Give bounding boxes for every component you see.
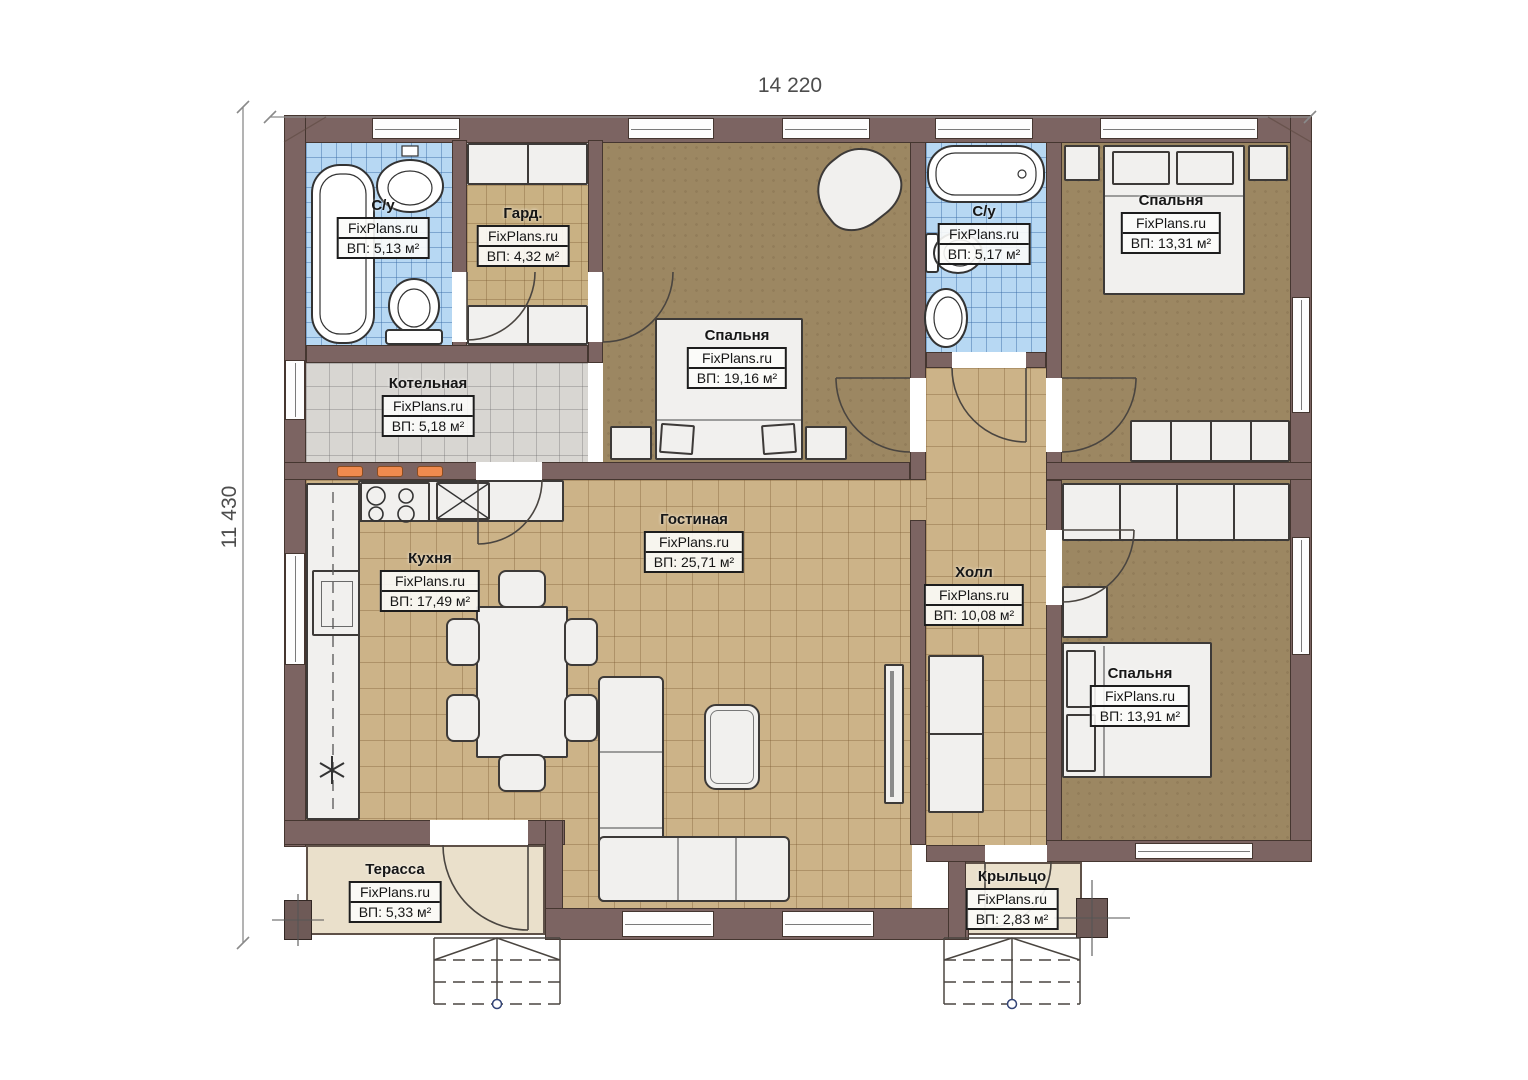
window-bottom-living-left	[622, 911, 714, 937]
chair	[564, 694, 598, 742]
brand-watermark: FixPlans.ru	[926, 586, 1022, 604]
room-area: ВП: 5,18 м²	[384, 415, 473, 435]
wall-living-bottom	[545, 908, 969, 940]
room-area: ВП: 5,13 м²	[339, 237, 428, 257]
wall-under-bath1	[306, 345, 588, 363]
dimension-top: 14 220	[270, 74, 1310, 98]
room-name: Гостиная	[644, 511, 744, 528]
wall-exterior-left	[284, 115, 306, 847]
room-name: Кухня	[380, 550, 480, 567]
door-opening-porch	[985, 845, 1047, 862]
oven	[312, 570, 360, 636]
window-bottom-living-right	[782, 911, 874, 937]
radiator-dash	[417, 466, 443, 477]
floor-plan-canvas: 14 220 11 430	[0, 0, 1528, 1080]
chair	[446, 694, 480, 742]
door-opening-bedroom3	[1046, 530, 1062, 605]
window-bottom-bedroom3	[1135, 843, 1253, 859]
room-label-terrace: Терасса FixPlans.ruВП: 5,33 м²	[349, 861, 442, 923]
window-top-bedroom2	[1100, 118, 1258, 139]
brand-watermark: FixPlans.ru	[384, 397, 473, 415]
pillow	[761, 423, 797, 455]
tv-unit	[884, 664, 904, 804]
kitchen-counter-left	[306, 483, 360, 820]
room-label-living: Гостиная FixPlans.ruВП: 25,71 м²	[644, 511, 744, 573]
column-porch	[1076, 898, 1108, 938]
window-right-bedroom3	[1292, 537, 1310, 655]
room-name: Гард.	[477, 205, 570, 222]
pillow	[1112, 151, 1170, 185]
nightstand	[1248, 145, 1288, 181]
room-area: ВП: 13,91 м²	[1092, 705, 1188, 725]
window-left-boiler	[285, 360, 305, 420]
room-label-bathroom-2: С/у FixPlans.ruВП: 5,17 м²	[938, 203, 1031, 265]
dimension-left: 11 430	[218, 457, 242, 577]
terrace-steps	[434, 938, 560, 1009]
window-top-bath1	[372, 118, 460, 139]
brand-watermark: FixPlans.ru	[968, 890, 1057, 908]
wardrobe-closet-bottom	[467, 305, 588, 345]
radiator-dash	[377, 466, 403, 477]
room-area: ВП: 13,31 м²	[1123, 232, 1219, 252]
wall-exterior-right	[1290, 115, 1312, 862]
chair	[446, 618, 480, 666]
window-top-bedroom1-right	[782, 118, 870, 139]
door-opening-bedroom2	[1046, 378, 1062, 452]
door-opening-bath2	[952, 352, 1026, 368]
hall-closet	[928, 655, 984, 813]
room-label-bedroom-3: Спальня FixPlans.ruВП: 13,91 м²	[1090, 665, 1190, 727]
porch-steps	[944, 938, 1080, 1009]
nightstand	[1064, 145, 1100, 181]
room-label-bedroom-2: Спальня FixPlans.ruВП: 13,31 м²	[1121, 192, 1221, 254]
room-name: Терасса	[349, 861, 442, 878]
door-opening-wardrobe	[588, 272, 603, 342]
window-right-bedroom2	[1292, 297, 1310, 413]
room-area: ВП: 2,83 м²	[968, 908, 1057, 928]
chair	[498, 570, 546, 608]
room-label-hall: Холл FixPlans.ruВП: 10,08 м²	[924, 564, 1024, 626]
stove	[360, 482, 430, 522]
room-label-wardrobe: Гард. FixPlans.ruВП: 4,32 м²	[477, 205, 570, 267]
room-area: ВП: 19,16 м²	[689, 367, 785, 387]
room-name: Крыльцо	[966, 868, 1059, 885]
dining-table	[476, 606, 568, 758]
brand-watermark: FixPlans.ru	[382, 572, 478, 590]
nightstand	[610, 426, 652, 460]
room-label-kitchen: Кухня FixPlans.ruВП: 17,49 м²	[380, 550, 480, 612]
chair	[498, 754, 546, 792]
window-top-bedroom1-left	[628, 118, 714, 139]
door-opening-boiler	[476, 462, 542, 480]
brand-watermark: FixPlans.ru	[689, 349, 785, 367]
room-area: ВП: 5,33 м²	[351, 901, 440, 921]
room-name: Спальня	[1090, 665, 1190, 682]
room-name: Холл	[924, 564, 1024, 581]
door-opening-bath1	[452, 272, 467, 342]
room-name: Спальня	[687, 327, 787, 344]
room-name: С/у	[337, 197, 430, 214]
room-area: ВП: 17,49 м²	[382, 590, 478, 610]
room-area: ВП: 4,32 м²	[479, 245, 568, 265]
brand-watermark: FixPlans.ru	[646, 533, 742, 551]
room-area: ВП: 5,17 м²	[940, 243, 1029, 263]
door-opening-terrace	[430, 820, 528, 845]
window-left-kitchen	[285, 553, 305, 665]
brand-watermark: FixPlans.ru	[940, 225, 1029, 243]
brand-watermark: FixPlans.ru	[479, 227, 568, 245]
window-top-bath2	[935, 118, 1033, 139]
pillow	[659, 423, 695, 455]
room-name: Спальня	[1121, 192, 1221, 209]
door-opening-bedroom1	[910, 378, 926, 452]
nightstand	[1062, 586, 1108, 638]
kitchen-sink	[436, 482, 490, 520]
wardrobe-bedroom2	[1130, 420, 1290, 462]
room-label-bedroom-1: Спальня FixPlans.ruВП: 19,16 м²	[687, 327, 787, 389]
room-label-porch: Крыльцо FixPlans.ruВП: 2,83 м²	[966, 868, 1059, 930]
room-name: С/у	[938, 203, 1031, 220]
wall-mid-right	[1046, 462, 1312, 480]
pillow	[1176, 151, 1234, 185]
wardrobe-bedroom3	[1062, 483, 1290, 541]
coffee-table	[704, 704, 760, 790]
brand-watermark: FixPlans.ru	[1092, 687, 1188, 705]
chair	[564, 618, 598, 666]
radiator-dash	[337, 466, 363, 477]
room-name: Котельная	[382, 375, 475, 392]
room-label-boiler: Котельная FixPlans.ruВП: 5,18 м²	[382, 375, 475, 437]
brand-watermark: FixPlans.ru	[351, 883, 440, 901]
nightstand	[805, 426, 847, 460]
column-terrace	[284, 900, 312, 940]
brand-watermark: FixPlans.ru	[339, 219, 428, 237]
room-area: ВП: 25,71 м²	[646, 551, 742, 571]
sofa-section-horizontal	[598, 836, 790, 902]
room-area: ВП: 10,08 м²	[926, 604, 1022, 624]
floor-passage	[910, 480, 926, 520]
brand-watermark: FixPlans.ru	[1123, 214, 1219, 232]
wardrobe-closet-top	[467, 143, 588, 185]
room-label-bathroom-1: С/у FixPlans.ruВП: 5,13 м²	[337, 197, 430, 259]
